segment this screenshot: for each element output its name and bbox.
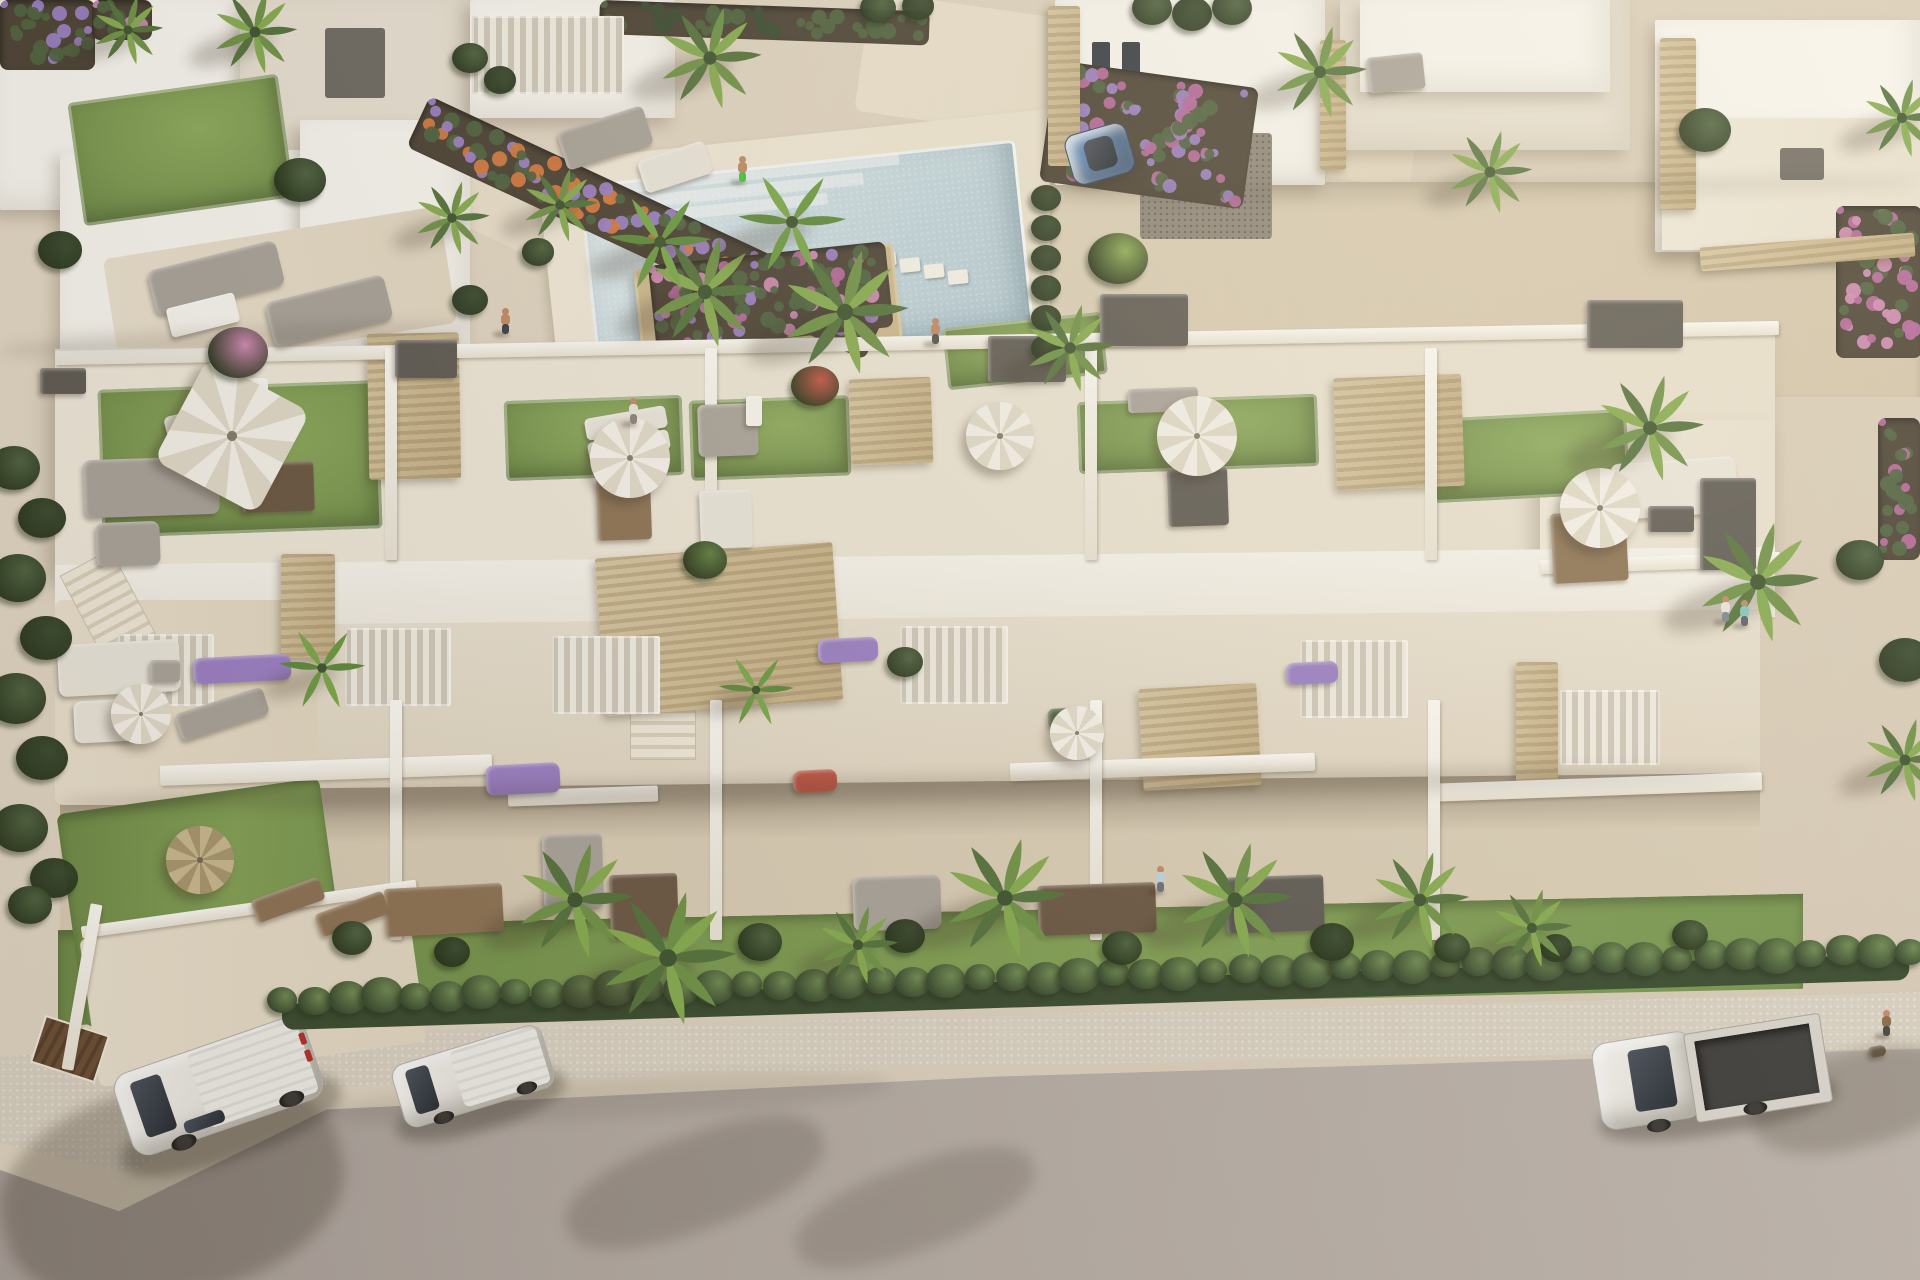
flower-cluster (1848, 216, 1860, 228)
flower-cluster (691, 270, 703, 282)
palm-frond (1598, 424, 1652, 452)
palm-crown (1228, 893, 1243, 908)
palm-shadow (1561, 414, 1676, 481)
slat-screen (472, 16, 624, 94)
pickup-truck (1579, 993, 1846, 1161)
white-wall (1540, 552, 1780, 574)
vehicle-shadow (390, 1056, 572, 1155)
flower-cluster (683, 243, 695, 255)
hedge-bush (1027, 962, 1065, 994)
aerial-residential-render (0, 0, 1920, 1280)
flower-cluster (475, 165, 490, 180)
person-head (1883, 1010, 1890, 1017)
flower-cluster (1073, 147, 1087, 161)
palm-frond (1028, 324, 1071, 353)
palm-frond (1199, 847, 1238, 904)
flower-cluster (1845, 293, 1856, 304)
flower-cluster (669, 314, 687, 332)
flower-cluster (841, 306, 857, 322)
flower-cluster (600, 0, 608, 8)
flower-cluster (834, 323, 849, 338)
flower-cluster (451, 135, 466, 150)
flower-cluster (866, 19, 879, 32)
flower-cluster (804, 296, 819, 311)
flower-cluster (441, 110, 462, 131)
outdoor-furniture (636, 140, 713, 194)
flower-cluster (755, 6, 763, 14)
palm-frond (710, 52, 762, 62)
shrub (522, 238, 554, 265)
hedge-bush (663, 974, 699, 1005)
palm-frond (319, 666, 341, 709)
palm-frond (784, 308, 848, 341)
flower-cluster (29, 7, 39, 17)
flower-cluster (110, 10, 126, 26)
palm-frond (701, 291, 722, 348)
flower-cluster (486, 126, 507, 147)
palm-frond (1716, 579, 1764, 634)
flower-cluster (1144, 141, 1158, 155)
base-layer (0, 0, 1920, 1280)
flower-cluster (1851, 230, 1862, 241)
straw-parasol (166, 826, 234, 894)
flower-cluster (1079, 157, 1091, 169)
palm-frond (1317, 71, 1334, 119)
flower-cluster (699, 302, 711, 314)
flower-cluster (1180, 120, 1194, 134)
pool-step (604, 172, 864, 211)
flower-cluster (1096, 67, 1110, 81)
flower-cluster (757, 257, 771, 271)
palm-frond (789, 220, 817, 274)
person (736, 156, 749, 184)
flower-cluster (757, 280, 774, 297)
shrub (0, 554, 46, 602)
flower-cluster (719, 288, 728, 297)
flower-cluster (1880, 476, 1896, 492)
flower-cluster (855, 315, 871, 331)
flower-cluster (1839, 305, 1849, 315)
flower-cluster (850, 317, 861, 328)
hedge-bush (361, 977, 403, 1013)
flower-cluster (1178, 135, 1193, 150)
palm-tree (1851, 706, 1920, 814)
hedge-bush (1058, 958, 1100, 994)
white-wall (160, 754, 492, 786)
hedge-bush (1562, 946, 1594, 973)
outdoor-furniture (1037, 882, 1157, 936)
flower-cluster (701, 26, 711, 36)
stone-clad-panel (1138, 683, 1261, 791)
palm-frond (1005, 890, 1066, 902)
flower-cluster (97, 1, 109, 13)
scenery-layer (0, 0, 1920, 1280)
flower-cluster (602, 193, 614, 205)
hedge-bush (732, 971, 762, 997)
flower-cluster (1898, 448, 1910, 460)
flower-cluster (693, 272, 708, 287)
palm-frond (1000, 853, 1055, 901)
palm-crown (447, 213, 457, 223)
shrub (1031, 215, 1061, 241)
flower-cluster (1846, 242, 1862, 258)
flower-cluster (601, 187, 621, 207)
slat-screen (1560, 690, 1660, 765)
flower-cluster (864, 10, 874, 20)
palm-frond (1417, 896, 1457, 940)
flower-cluster (743, 289, 759, 305)
palm-frond (449, 217, 463, 255)
palm-frond (1288, 70, 1325, 112)
stone-clad-panel (1333, 374, 1465, 490)
flower-cluster (1890, 220, 1906, 236)
palm-shadow (185, 21, 275, 73)
palm-frond (1068, 344, 1104, 383)
flower-cluster (1088, 173, 1099, 184)
flower-cluster (1889, 485, 1905, 501)
flower-cluster (1866, 296, 1881, 311)
person (1719, 596, 1732, 624)
flower-cluster (749, 250, 760, 261)
flower-cluster (1082, 167, 1091, 176)
hedge-bush (1159, 957, 1199, 991)
flower-cluster (706, 329, 722, 345)
flower-cluster (1189, 133, 1201, 145)
flower-cluster (1092, 79, 1107, 94)
palm-crown (1414, 894, 1427, 907)
palm-frond (608, 231, 660, 248)
pool-step (600, 152, 900, 195)
palm-frond (1487, 171, 1503, 214)
palm-shadow (1657, 566, 1787, 641)
flower-cluster (1071, 156, 1087, 172)
palm-frond (253, 29, 287, 66)
flower-cluster (1905, 329, 1916, 340)
flower-cluster (1085, 148, 1103, 166)
palm-frond (1903, 757, 1920, 794)
flower-cluster (1879, 545, 1887, 553)
palm-frond (104, 28, 132, 60)
palm-frond (1416, 864, 1460, 903)
flower-cluster (708, 285, 719, 296)
flower-cluster (601, 14, 615, 28)
shrub (1031, 245, 1061, 271)
palm-tree (512, 157, 608, 253)
hedge-bush (1756, 938, 1798, 974)
palm-shadow (1466, 918, 1551, 967)
flower-cluster (710, 236, 729, 255)
flower-cluster (680, 307, 693, 320)
palm-frond (255, 27, 297, 35)
flower-cluster (695, 19, 705, 29)
flower-cluster (706, 5, 719, 18)
palm-frond (429, 184, 454, 220)
shrub (434, 937, 470, 968)
flower-cluster (864, 287, 880, 303)
stepping-stone (851, 245, 872, 261)
stone-clad-panel (281, 554, 335, 658)
flower-cluster (427, 96, 438, 107)
palm-frond (621, 955, 674, 1016)
person (1738, 600, 1751, 628)
person (929, 318, 942, 346)
palm-frond (1449, 169, 1492, 191)
flower-cluster (0, 0, 8, 8)
flower-cluster (1055, 60, 1064, 69)
flower-cluster (1185, 111, 1196, 122)
flower-bed (648, 241, 894, 351)
shrub (1836, 540, 1884, 581)
palm-frond (1530, 925, 1562, 960)
flower-cluster (564, 204, 584, 224)
flower-cluster (1103, 96, 1117, 110)
hedge-bush (1197, 958, 1227, 984)
flower-cluster (57, 24, 71, 38)
cast-shadow (552, 1092, 838, 1274)
flower-cluster (829, 9, 845, 25)
palm-tree (1680, 504, 1836, 660)
flower-cluster (1901, 447, 1913, 459)
top-left-terrace (103, 206, 457, 376)
flower-cluster (629, 211, 648, 230)
flower-cluster (788, 268, 804, 284)
palm-shadow (715, 210, 815, 268)
flower-cluster (1895, 449, 1907, 461)
garden-curb-wall (275, 992, 1920, 1068)
palm-frond (662, 30, 712, 64)
flower-cluster (1861, 282, 1874, 295)
white-parasol (1560, 468, 1640, 548)
palm-shadow (1339, 887, 1444, 948)
vehicle-shadow (112, 1057, 351, 1194)
flower-cluster (1071, 153, 1088, 170)
outdoor-furniture (250, 876, 326, 923)
flower-cluster (662, 266, 678, 282)
flower-cluster (1181, 95, 1198, 112)
shrub (1172, 0, 1212, 31)
flower-cluster (738, 313, 747, 322)
flower-cluster (800, 295, 818, 313)
flower-cluster (1088, 116, 1105, 133)
flower-cluster (672, 268, 684, 280)
flower-cluster (667, 8, 683, 24)
palm-frond (252, 31, 268, 74)
white-parasol (1157, 396, 1237, 476)
flower-cluster (710, 325, 724, 339)
flower-cluster (662, 207, 681, 226)
palm-frond (1879, 722, 1907, 763)
person-legs (630, 414, 637, 424)
flower-cluster (1175, 89, 1191, 105)
person-head (502, 308, 509, 315)
front-garden-band (58, 894, 1803, 1026)
artificial-turf (98, 380, 383, 538)
palm-frond (1372, 897, 1422, 923)
palm-frond (1230, 857, 1282, 904)
palm-frond (734, 656, 759, 692)
outdoor-furniture (596, 477, 652, 541)
stepping-stone (947, 269, 968, 285)
flower-cluster (805, 21, 814, 30)
stone-clad-panel (1699, 233, 1915, 272)
palm-frond (518, 896, 577, 927)
van-body (109, 1012, 328, 1160)
hedge-bush (1128, 959, 1164, 990)
van-wheel (169, 1131, 198, 1154)
flower-cluster (652, 9, 664, 21)
flower-cluster (1065, 162, 1083, 180)
flower-cluster (762, 21, 776, 35)
pickup-cab (1589, 1029, 1704, 1132)
palm-frond (656, 199, 695, 244)
white-wall (390, 700, 402, 940)
palm-frond (417, 197, 453, 222)
flower-cluster (1906, 322, 1920, 337)
hedge-bush (1329, 952, 1361, 979)
flower-cluster (1161, 126, 1179, 144)
palm-tree (1481, 877, 1583, 979)
flower-cluster (720, 255, 732, 267)
car-roof-glass (1082, 134, 1120, 173)
palm-shadow (1420, 161, 1510, 213)
flower-cluster (1174, 107, 1190, 123)
hedge-bush (1360, 950, 1396, 981)
palm-shadow (612, 278, 732, 347)
shrub (1879, 638, 1920, 682)
flower-cluster (1106, 82, 1118, 94)
palm-frond (1527, 889, 1547, 929)
stepping-stone (899, 257, 920, 273)
flower-cluster (727, 272, 744, 289)
person-torso (1740, 606, 1749, 617)
flower-cluster (1071, 140, 1086, 155)
artificial-turf (504, 395, 685, 481)
flower-cluster (1902, 320, 1916, 334)
palm-tree (1160, 825, 1310, 975)
flower-cluster (789, 305, 800, 316)
flower-cluster (693, 238, 712, 257)
flower-cluster (852, 22, 862, 32)
outdoor-furniture (1167, 467, 1229, 527)
flower-cluster (880, 23, 897, 40)
palm-crown (654, 236, 665, 247)
outdoor-furniture (1128, 387, 1199, 413)
palm-frond (250, 0, 272, 33)
flower-cluster (830, 278, 840, 288)
flower-cluster (1852, 216, 1861, 225)
flower-cluster (1222, 190, 1234, 202)
flower-cluster (1884, 428, 1894, 438)
flower-cluster (1151, 171, 1165, 185)
flower-cluster (1138, 140, 1149, 151)
flower-cluster (839, 317, 850, 328)
flower-cluster (728, 282, 740, 294)
flower-cluster (717, 8, 734, 25)
flower-cluster (508, 141, 528, 161)
flower-cluster (1863, 269, 1871, 277)
palm-frond (652, 261, 707, 298)
flower-cluster (440, 119, 455, 134)
flower-cluster (752, 9, 763, 20)
person-shadow (621, 422, 637, 427)
flower-cluster (564, 184, 583, 203)
palm-crown (853, 940, 863, 950)
person-torso (501, 314, 510, 325)
white-wall (385, 348, 397, 560)
flower-cluster (759, 311, 777, 329)
white-wall (62, 903, 103, 1071)
shrub (887, 647, 923, 678)
person-torso (629, 404, 638, 415)
palm-frond (1878, 82, 1905, 121)
flower-bed (599, 0, 930, 45)
palm-frond (449, 190, 483, 220)
van-taillight (304, 1049, 314, 1062)
pickup-bed (1694, 1023, 1820, 1110)
hedge-bush (399, 983, 431, 1010)
flower-cluster (634, 235, 647, 248)
palm-frond (124, 0, 142, 31)
blue-car (1057, 116, 1141, 195)
flower-cluster (652, 19, 664, 31)
palm-frond (426, 216, 455, 250)
outdoor-furniture (1225, 874, 1325, 933)
pool-deck (536, 103, 1134, 414)
flower-cluster (447, 135, 463, 151)
hedge-bush (864, 967, 896, 994)
flower-cluster (1073, 132, 1084, 143)
person (1154, 866, 1167, 894)
palm-frond (128, 26, 163, 33)
palm-frond (651, 288, 708, 318)
palm-frond (1178, 896, 1237, 927)
flower-cluster (811, 11, 823, 23)
palm-frond (604, 921, 670, 966)
palm-frond (660, 55, 712, 82)
palm-frond (1314, 26, 1338, 73)
van-windshield (129, 1073, 178, 1138)
palm-frond (806, 255, 849, 316)
flower-cluster (727, 314, 742, 329)
outdoor-furniture (1700, 478, 1756, 570)
flower-cluster (755, 16, 766, 27)
flower-cluster (601, 216, 621, 236)
outdoor-furniture (792, 769, 837, 793)
flower-cluster (734, 303, 750, 319)
shrub (1212, 0, 1252, 25)
flower-cluster (916, 14, 927, 25)
flower-cluster (770, 286, 779, 295)
flower-cluster (527, 162, 547, 182)
flower-cluster (32, 0, 44, 12)
flower-cluster (743, 8, 751, 16)
flower-cluster (1886, 488, 1895, 497)
flower-cluster (853, 252, 865, 264)
palm-frond (520, 868, 577, 907)
flower-cluster (731, 270, 749, 288)
shrub (16, 736, 68, 780)
artificial-turf (67, 74, 294, 226)
flower-cluster (749, 270, 760, 281)
palm-frond (963, 895, 1011, 950)
white-parasol (111, 684, 171, 744)
flower-cluster (823, 327, 834, 338)
flower-cluster (812, 263, 826, 277)
flower-cluster (66, 43, 80, 57)
flower-cluster (834, 294, 846, 306)
white-van-small (376, 1012, 574, 1164)
flower-cluster (552, 201, 567, 216)
